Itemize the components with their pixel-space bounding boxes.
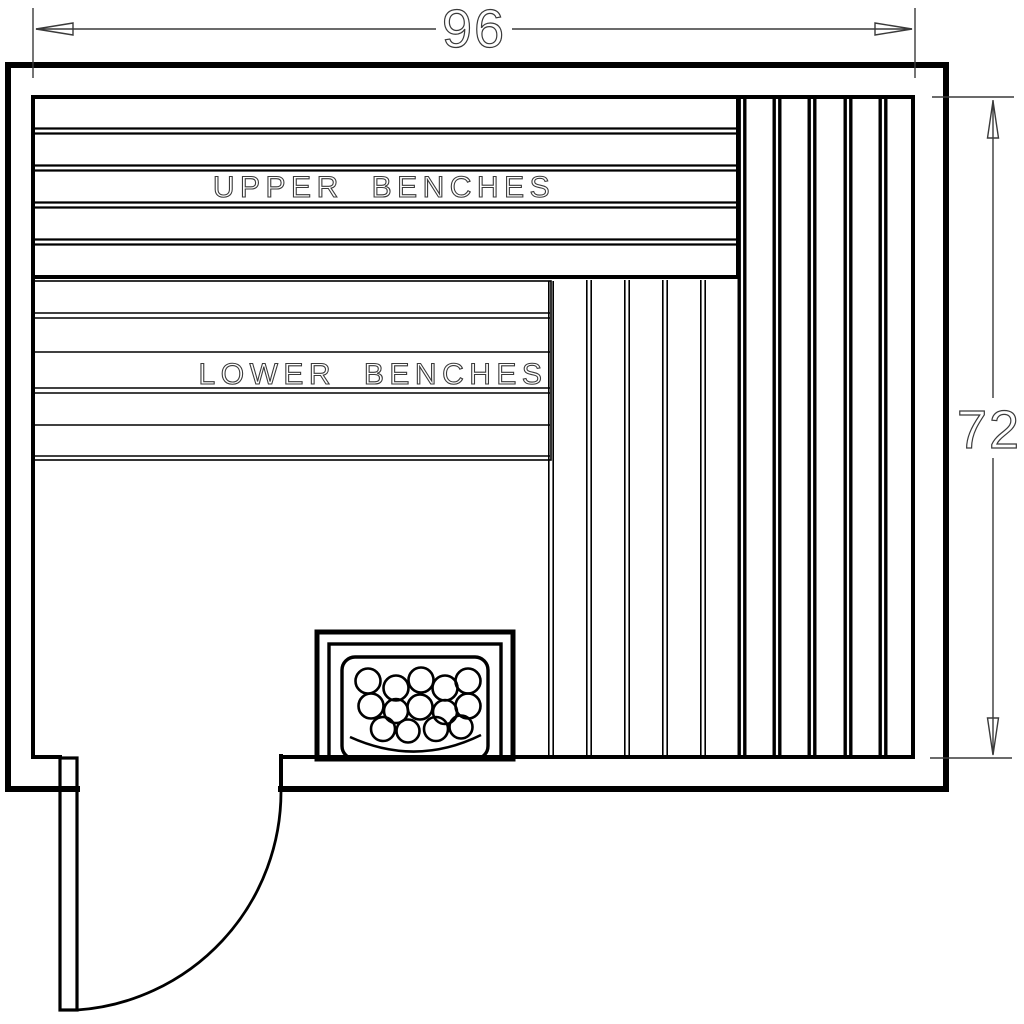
floor-plan-canvas: UPPER BENCHES LOWER BENCHES	[0, 0, 1024, 1024]
lower-benches-label: LOWER BENCHES	[199, 358, 548, 391]
width-value: 96	[442, 0, 506, 59]
sauna-heater	[317, 632, 513, 759]
sauna-floor-plan-drawing: UPPER BENCHES LOWER BENCHES	[0, 0, 1024, 1024]
middle-floor-planks	[549, 280, 705, 756]
upper-benches-label: UPPER BENCHES	[213, 171, 555, 204]
upper-bench-block: UPPER BENCHES	[33, 97, 738, 277]
lower-bench-block: LOWER BENCHES	[33, 281, 551, 460]
heater-inner-box	[329, 644, 501, 759]
door	[60, 758, 281, 1010]
heater-rocks	[356, 668, 481, 743]
door-leaf	[60, 758, 77, 1010]
right-floor-planks	[739, 99, 886, 756]
door-swing-arc	[77, 790, 281, 1010]
height-value: 72	[957, 400, 1021, 460]
